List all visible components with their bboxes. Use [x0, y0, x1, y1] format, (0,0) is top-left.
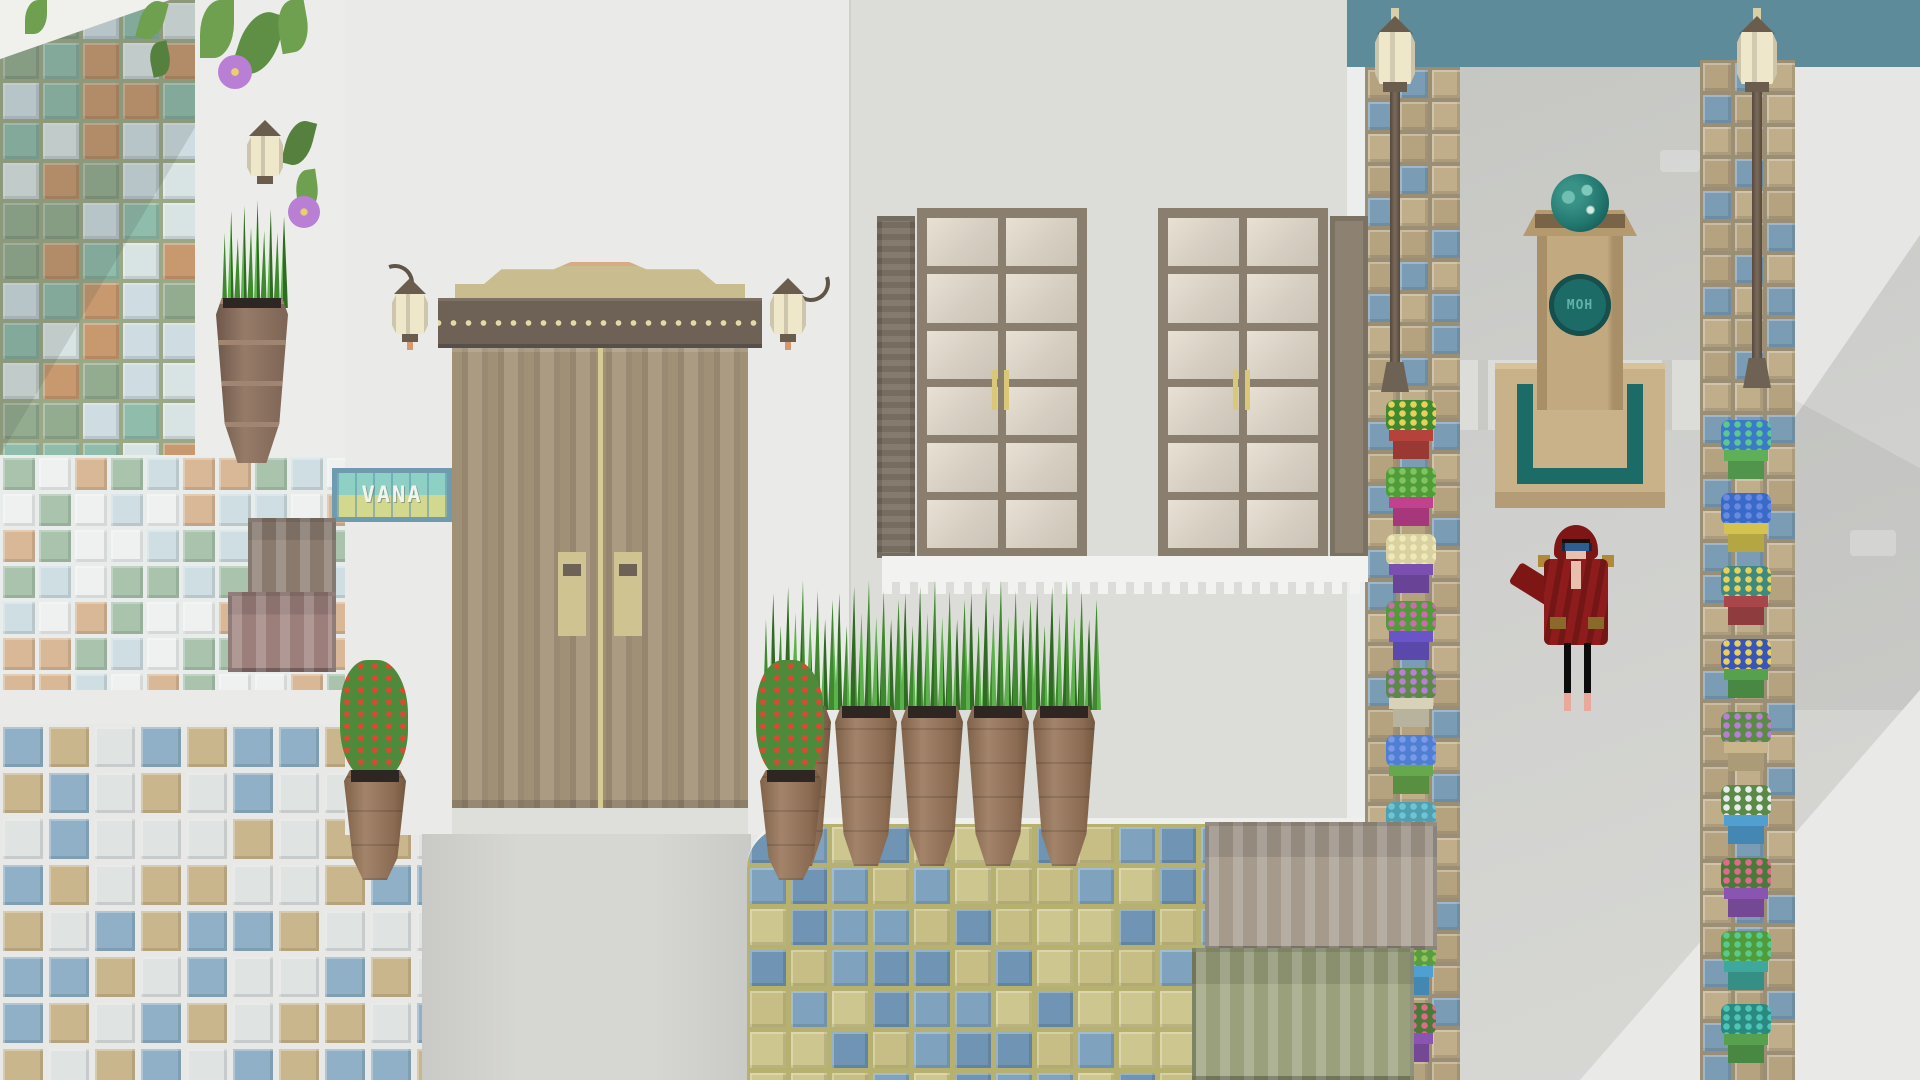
right-pot-stack [1700, 420, 1795, 1080]
tile [83, 283, 119, 319]
monument-emblem-text: MOH [1567, 298, 1593, 313]
tile [914, 950, 950, 986]
plant [1386, 668, 1436, 700]
tile [123, 283, 159, 319]
flower-pot-blue-iris[interactable] [1383, 735, 1439, 797]
tile [141, 1049, 181, 1080]
tile [1078, 991, 1114, 1027]
tile [1119, 868, 1155, 904]
street-lamp-left [1373, 8, 1417, 400]
tile [955, 991, 991, 1027]
tile [1703, 383, 1731, 411]
pot-body [1393, 776, 1429, 794]
tile [111, 494, 143, 526]
tile [291, 674, 323, 690]
tile [75, 566, 107, 598]
tile [914, 909, 950, 945]
game-scene: MOH [0, 0, 1920, 1080]
tile [3, 865, 43, 905]
window-pane [1168, 443, 1239, 491]
tile [873, 1073, 909, 1080]
tile [141, 773, 181, 813]
tile [1160, 991, 1196, 1027]
tile [141, 727, 181, 767]
tile [1037, 1073, 1073, 1080]
tile [43, 443, 79, 455]
tile [43, 363, 79, 399]
tile [1703, 127, 1731, 155]
tile [43, 203, 79, 239]
tile [163, 123, 195, 159]
pot-rim [1389, 698, 1433, 709]
pot-rim [1724, 523, 1768, 534]
pot-body [1393, 575, 1429, 593]
tile [914, 1073, 950, 1080]
tile [39, 494, 71, 526]
tile [750, 909, 786, 945]
flower-pot-green-fern[interactable] [1383, 467, 1439, 529]
tile [873, 868, 909, 904]
crate-small-mauve[interactable] [228, 592, 336, 672]
tile [111, 674, 143, 690]
tile [75, 638, 107, 670]
tile [43, 3, 79, 39]
tile [111, 530, 143, 562]
tile [233, 773, 273, 813]
pot-rim [1724, 596, 1768, 607]
door-handle-left[interactable] [558, 552, 586, 636]
lantern-tip-icon [785, 342, 791, 350]
window-pane [1168, 500, 1239, 548]
tile [3, 674, 35, 690]
tile [255, 674, 287, 690]
plant [1721, 785, 1771, 817]
lamp-pole [1390, 92, 1400, 364]
tile [163, 283, 195, 319]
tile [3, 163, 39, 199]
tile [43, 123, 79, 159]
pot-body [1393, 709, 1429, 727]
tile [873, 950, 909, 986]
window-pane [1006, 443, 1077, 491]
lamp-cap-icon [1739, 16, 1775, 34]
pavement-patch [1660, 150, 1700, 172]
lamp-base [1381, 362, 1409, 392]
tile [39, 530, 71, 562]
sea-band [1347, 0, 1920, 67]
tile [147, 566, 179, 598]
tile [147, 602, 179, 634]
pot-rim [1389, 497, 1433, 508]
tile [163, 443, 195, 455]
tile [791, 991, 827, 1027]
tile [914, 868, 950, 904]
tile [233, 957, 273, 997]
tile [279, 1003, 319, 1043]
window1-shutter[interactable] [877, 216, 915, 558]
tile [111, 602, 143, 634]
tile [219, 494, 251, 526]
tile [43, 163, 79, 199]
window2-handle [1245, 370, 1250, 410]
tile [163, 243, 195, 279]
tile [187, 819, 227, 859]
tile [873, 991, 909, 1027]
tile [1078, 1032, 1114, 1068]
door-lantern-left [390, 268, 430, 354]
tile [832, 868, 868, 904]
tile [49, 1003, 89, 1043]
plant [1721, 420, 1771, 452]
flower-pot-blue-iris[interactable] [1718, 493, 1774, 555]
tile [996, 1032, 1032, 1068]
tile [1078, 909, 1114, 945]
npc-leg-right [1584, 643, 1591, 693]
tile [1432, 102, 1460, 130]
tile [187, 957, 227, 997]
tile [83, 3, 119, 39]
tile [141, 865, 181, 905]
window-pane [927, 218, 998, 266]
tile [3, 530, 35, 562]
lantern-foot-icon [780, 334, 796, 342]
lantern-glass-icon [770, 294, 806, 334]
tile [163, 3, 195, 39]
tile [1703, 287, 1731, 315]
pot-body [1728, 899, 1764, 917]
window1-handle [992, 370, 997, 410]
flower-pot-white-blossoms[interactable] [1718, 785, 1774, 847]
pot-rim [1389, 631, 1433, 642]
tile [163, 323, 195, 359]
npc-chest [1571, 561, 1581, 589]
flower-pot-yellow-daffodils[interactable] [1383, 400, 1439, 462]
tile [43, 323, 79, 359]
lamp-base [1743, 358, 1771, 388]
tile [187, 911, 227, 951]
tile [141, 819, 181, 859]
lantern-tip-icon [407, 342, 413, 350]
tile [75, 494, 107, 526]
tile [1119, 909, 1155, 945]
window-pane [1006, 274, 1077, 322]
shop-sign-text: VANA [362, 483, 423, 508]
tile [147, 494, 179, 526]
door-lantern-right [768, 268, 808, 354]
window-pane [1247, 500, 1318, 548]
tile [1703, 223, 1731, 251]
monument[interactable]: MOH [1495, 188, 1665, 518]
tile [325, 1003, 365, 1043]
tile [279, 957, 319, 997]
window-pane [1006, 218, 1077, 266]
tile [1160, 1032, 1196, 1068]
plant [1721, 566, 1771, 598]
tile [163, 363, 195, 399]
plant [1386, 601, 1436, 633]
tile [1432, 70, 1460, 98]
tile [49, 911, 89, 951]
tile [75, 674, 107, 690]
flower-pot-green-shrub[interactable] [1718, 931, 1774, 993]
tile [1037, 1032, 1073, 1068]
window-pane [1247, 274, 1318, 322]
tile [3, 323, 39, 359]
window2-handle [1233, 370, 1238, 410]
tile [1432, 198, 1460, 226]
window2-shutter[interactable] [1330, 216, 1368, 558]
tile [371, 911, 411, 951]
window-pane [1247, 218, 1318, 266]
flower-pot-blue-dot-bush[interactable] [1718, 639, 1774, 701]
flower-pot-pale-cactus[interactable] [1383, 534, 1439, 596]
flower-pot-teal-bloom[interactable] [1718, 1004, 1774, 1066]
tile [279, 727, 319, 767]
window-pane [1006, 331, 1077, 379]
tile [1703, 255, 1731, 283]
tile [187, 1049, 227, 1080]
tile [1037, 868, 1073, 904]
tile [3, 243, 39, 279]
flower-pot-purple-cluster[interactable] [1718, 712, 1774, 774]
npc-visor [1562, 543, 1592, 551]
monument-medallion: MOH [1549, 274, 1611, 336]
tile [123, 83, 159, 119]
tile [3, 443, 39, 455]
window-pane [1168, 387, 1239, 435]
tile [83, 403, 119, 439]
window-pane [927, 274, 998, 322]
tile [3, 957, 43, 997]
plant [1721, 858, 1771, 890]
lamp-cap-icon [1377, 16, 1413, 34]
tile [83, 83, 119, 119]
back-wall-post [1478, 360, 1488, 430]
tile [83, 43, 119, 79]
tile [187, 773, 227, 813]
crate-tan[interactable] [1205, 822, 1437, 950]
tile [955, 1073, 991, 1080]
tile [914, 991, 950, 1027]
tile [95, 819, 135, 859]
tile [1119, 827, 1155, 863]
door-handle-right[interactable] [614, 552, 642, 636]
window-pane [927, 443, 998, 491]
npc-ankle-left [1564, 693, 1571, 711]
tile [183, 458, 215, 490]
crate-olive[interactable] [1192, 948, 1414, 1080]
tile [371, 1003, 411, 1043]
tile [1078, 1073, 1114, 1080]
tile [1160, 827, 1196, 863]
tile [123, 243, 159, 279]
tile [3, 203, 39, 239]
tile [791, 950, 827, 986]
street-lamp-right [1735, 8, 1779, 398]
purple-flower [218, 55, 252, 89]
tile [1119, 1073, 1155, 1080]
tile [123, 403, 159, 439]
tile [3, 911, 43, 951]
plant [1721, 493, 1771, 525]
lamp-glass-icon [1737, 32, 1777, 84]
npc-ankle-right [1584, 693, 1591, 711]
tile [141, 911, 181, 951]
pot-rim [1724, 669, 1768, 680]
tile [187, 1003, 227, 1043]
tile [1078, 950, 1114, 986]
globe-icon [1551, 174, 1609, 232]
pot-body [1728, 461, 1764, 479]
tile [233, 1049, 273, 1080]
tile [83, 203, 119, 239]
window-pane [1247, 387, 1318, 435]
tile [111, 458, 143, 490]
shop-sign[interactable]: VANA [332, 468, 452, 522]
plant [1386, 400, 1436, 432]
tile [95, 773, 135, 813]
tile [996, 909, 1032, 945]
tile [123, 123, 159, 159]
window2[interactable] [1158, 208, 1328, 558]
door-lintel-dots [438, 298, 762, 348]
tile [43, 83, 79, 119]
tile [1432, 262, 1460, 290]
window-pane [927, 331, 998, 379]
flower-pot-purple-cluster[interactable] [1383, 668, 1439, 730]
ledge-fringe [882, 556, 1368, 582]
tile [3, 283, 39, 319]
tile [147, 638, 179, 670]
flower-pot-blue-green-sprout[interactable] [1718, 420, 1774, 482]
pot-body [1728, 972, 1764, 990]
tile [3, 819, 43, 859]
pot-body [1393, 642, 1429, 660]
pot-rim [1389, 765, 1433, 776]
plant [1721, 639, 1771, 671]
tile [95, 865, 135, 905]
tile [832, 950, 868, 986]
tile [95, 1049, 135, 1080]
tile [873, 1032, 909, 1068]
flower-pot-teal-dot-bush[interactable] [1718, 566, 1774, 628]
tile [111, 566, 143, 598]
tile [3, 602, 35, 634]
tile [43, 243, 79, 279]
lantern-cap-icon [249, 120, 281, 136]
tile [1703, 63, 1731, 91]
npc-belt-left [1550, 617, 1566, 629]
tile [1037, 950, 1073, 986]
tile [1703, 351, 1731, 379]
tile [233, 727, 273, 767]
flower-pot-pink-dot-bush[interactable] [1383, 601, 1439, 663]
tile [873, 909, 909, 945]
tile [1432, 166, 1460, 194]
tile [750, 991, 786, 1027]
tile [49, 865, 89, 905]
tile [183, 674, 215, 690]
pot-rim [1389, 430, 1433, 441]
tile [996, 950, 1032, 986]
npc-red-cloak[interactable] [1528, 525, 1624, 717]
window-pane [927, 387, 998, 435]
tile [1432, 358, 1460, 386]
tile [914, 1032, 950, 1068]
tile [163, 403, 195, 439]
tile [832, 991, 868, 1027]
pot-body [1393, 508, 1429, 526]
tile [291, 458, 323, 490]
tile [791, 909, 827, 945]
pot-body [1728, 826, 1764, 844]
tile [83, 123, 119, 159]
tile [233, 911, 273, 951]
pavement-patch [1850, 530, 1896, 556]
pot-rim [1389, 564, 1433, 575]
tile [219, 530, 251, 562]
window1[interactable] [917, 208, 1087, 558]
tile [1160, 950, 1196, 986]
tile [49, 819, 89, 859]
tile [95, 911, 135, 951]
lamp-pole [1752, 92, 1762, 358]
tile [1078, 868, 1114, 904]
tile [83, 443, 119, 455]
tile [3, 638, 35, 670]
tile [3, 458, 35, 490]
tile [3, 123, 39, 159]
tile [49, 1049, 89, 1080]
tile [233, 1003, 273, 1043]
tile [3, 494, 35, 526]
crate-small-brown[interactable] [248, 518, 336, 596]
tile [123, 443, 159, 455]
tile [75, 602, 107, 634]
red-flower-bush [756, 660, 824, 780]
lantern-foot-icon [257, 176, 273, 184]
tile [1432, 134, 1460, 162]
tile [1160, 868, 1196, 904]
tile [279, 1049, 319, 1080]
tile [832, 1032, 868, 1068]
tile [187, 865, 227, 905]
tile [163, 163, 195, 199]
tile [955, 950, 991, 986]
pot-rim [1724, 450, 1768, 461]
tile [1432, 230, 1460, 258]
tile [1119, 991, 1155, 1027]
tile [955, 868, 991, 904]
lantern-glass-icon [247, 136, 283, 176]
flower-pot-pink-tulips[interactable] [1718, 858, 1774, 920]
lantern-foot-icon [402, 334, 418, 342]
tile [750, 1073, 786, 1080]
npc-leg-left [1564, 643, 1571, 693]
plant [1721, 931, 1771, 963]
tile [83, 363, 119, 399]
tile [1703, 319, 1731, 347]
tile [3, 363, 39, 399]
tile [141, 957, 181, 997]
tile [123, 203, 159, 239]
window1-handle [1004, 370, 1009, 410]
tile [996, 868, 1032, 904]
tile [1119, 950, 1155, 986]
tile [750, 1032, 786, 1068]
tile [183, 638, 215, 670]
window-pane [1168, 331, 1239, 379]
